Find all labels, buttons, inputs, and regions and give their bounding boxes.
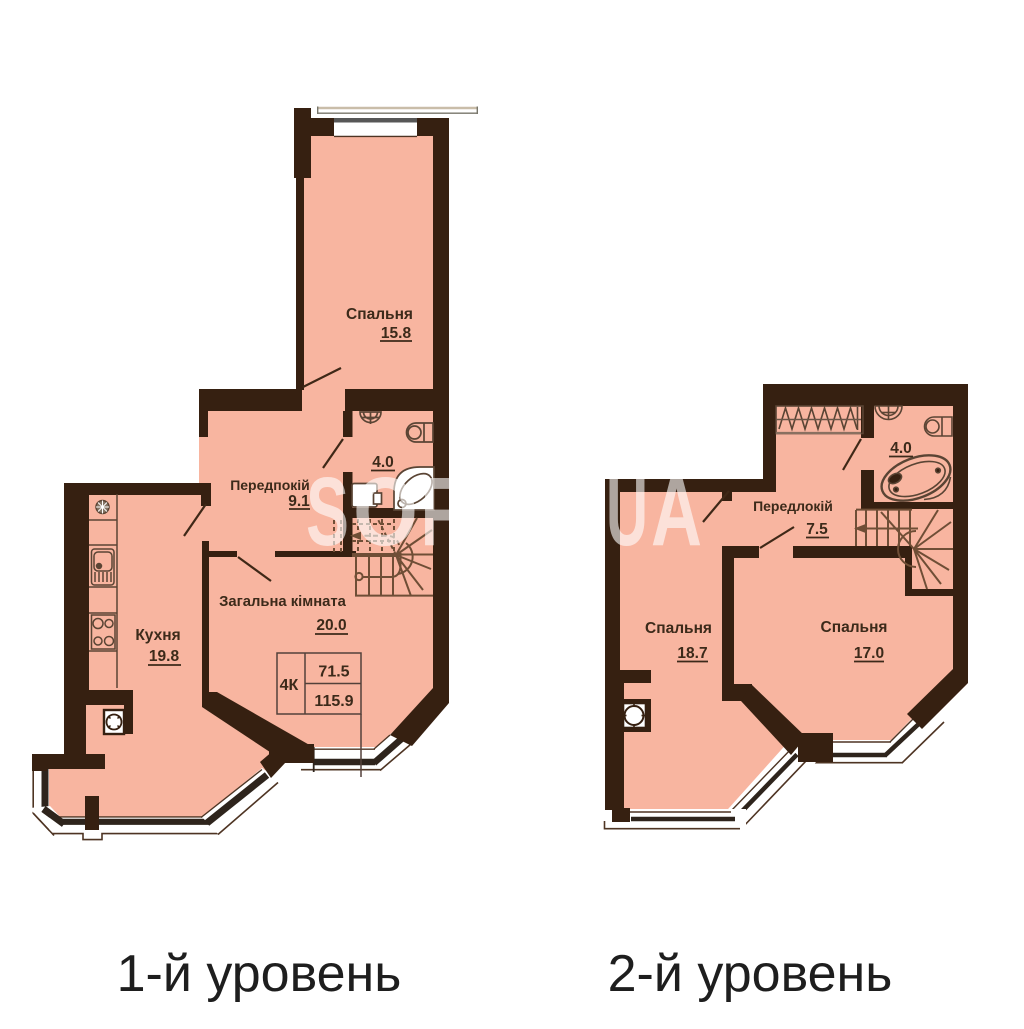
svg-text:Спальня: Спальня [645,620,712,637]
svg-text:20.0: 20.0 [316,617,346,634]
svg-text:7.5: 7.5 [806,521,828,538]
svg-text:Передпокій: Передпокій [230,477,310,493]
svg-text:Кухня: Кухня [135,627,180,644]
svg-text:15.8: 15.8 [381,325,412,342]
svg-text:U: U [606,457,648,566]
svg-text:S: S [306,457,349,566]
svg-text:18.7: 18.7 [677,645,707,662]
svg-text:1-й уровень: 1-й уровень [117,945,402,1003]
svg-text:115.9: 115.9 [314,693,353,710]
svg-text:17.0: 17.0 [854,645,884,662]
svg-text:4К: 4К [280,677,299,694]
svg-text:4.0: 4.0 [890,440,912,457]
svg-text:19.8: 19.8 [149,648,180,665]
svg-text:Загальна кімната: Загальна кімната [219,594,347,610]
svg-text:O: O [353,457,418,566]
svg-text:2-й уровень: 2-й уровень [608,945,893,1003]
svg-text:71.5: 71.5 [318,664,349,681]
svg-text:Спальня: Спальня [821,619,888,636]
svg-text:A: A [651,457,702,566]
svg-text:Спальня: Спальня [346,306,413,323]
svg-text:Передлокій: Передлокій [753,498,833,514]
svg-text:F: F [421,457,458,566]
